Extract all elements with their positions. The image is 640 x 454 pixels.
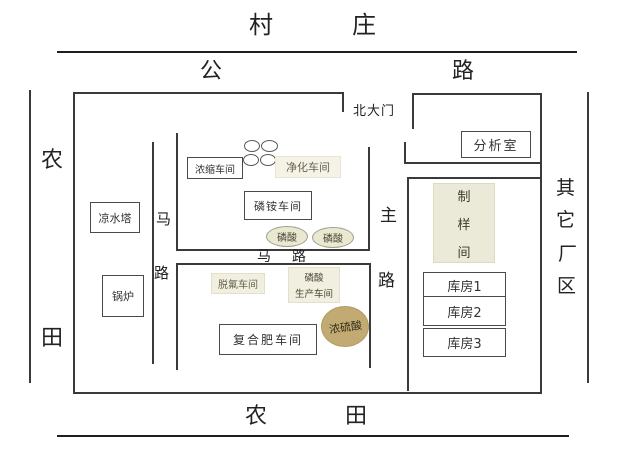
sample-prep-char2: 样 [457, 214, 470, 233]
warehouse-2: 库房2 [423, 296, 506, 326]
upper-block-wall-bottom [176, 249, 370, 251]
factory-wall-top-left [73, 92, 344, 94]
farmland-bottom-char2: 田 [345, 406, 367, 428]
sample-prep-char3: 间 [457, 242, 470, 261]
factory-wall-left [73, 92, 75, 394]
purification-workshop-label: 净化车间 [286, 159, 330, 175]
phosphoric-acid-production-line2: 生产车间 [295, 286, 333, 300]
warehouse-3: 库房3 [423, 328, 506, 357]
tank-circle-1 [244, 140, 260, 152]
analysis-room-label: 分析室 [473, 135, 518, 154]
tank-circle-2 [261, 140, 278, 152]
inner-road-vertical-char1: 马 [156, 212, 171, 227]
main-road-char2: 路 [378, 273, 395, 290]
phosphoric-acid-tank-2-label: 磷酸 [323, 230, 343, 245]
upper-block-wall-right [368, 147, 370, 251]
highway-label-char1: 公 [200, 61, 222, 83]
ammonium-phosphate-workshop: 磷铵车间 [244, 191, 312, 220]
lower-block-wall-left [176, 263, 178, 370]
main-road-char1: 主 [380, 208, 397, 225]
inner-road-horizontal-char2: 路 [292, 250, 306, 264]
cooling-tower: 凉水塔 [90, 202, 140, 233]
lower-block-wall-right [369, 263, 371, 368]
concentrated-sulfuric-acid-label: 浓硫酸 [328, 316, 363, 336]
tank-circle-3 [243, 154, 259, 166]
inner-road-horizontal-char1: 马 [257, 250, 271, 264]
bottom-road-line [57, 435, 569, 437]
storage-area-wall-left [407, 177, 409, 391]
top-road-line [57, 51, 577, 53]
sample-prep-char1: 制 [457, 186, 470, 205]
north-gate-label: 北大门 [353, 105, 395, 118]
upper-block-wall-left [176, 133, 178, 251]
compound-fertilizer-workshop: 复合肥车间 [219, 324, 317, 355]
other-area-char4: 区 [557, 277, 576, 296]
analysis-room: 分析室 [461, 131, 531, 158]
farmland-bottom-char1: 农 [245, 406, 267, 428]
highway-label-char2: 路 [452, 61, 474, 83]
phosphoric-acid-tank-1-label: 磷酸 [277, 229, 297, 244]
phosphoric-acid-production-line1: 磷酸 [304, 270, 323, 284]
warehouse-2-label: 库房2 [447, 302, 481, 321]
defluorination-workshop-label: 脱氟车间 [218, 276, 258, 291]
analysis-area-wall-v [404, 142, 406, 164]
purification-workshop: 净化车间 [275, 156, 341, 178]
farmland-left-char2: 田 [41, 328, 63, 350]
cooling-tower-label: 凉水塔 [99, 210, 132, 226]
warehouse-1-label: 库房1 [447, 276, 481, 295]
boiler-label: 锅炉 [112, 288, 134, 304]
concentration-workshop: 浓缩车间 [187, 157, 243, 179]
other-area-char1: 其 [556, 179, 575, 198]
tank-circle-4 [260, 154, 276, 166]
phosphoric-acid-tank-1: 磷酸 [266, 226, 308, 247]
concentration-workshop-label: 浓缩车间 [195, 161, 235, 176]
analysis-area-wall-h [404, 162, 541, 164]
factory-wall-top-right [412, 93, 542, 95]
village-label-char2: 庄 [352, 13, 376, 37]
warehouse-1: 库房1 [423, 272, 506, 298]
boiler: 锅炉 [102, 275, 144, 317]
other-area-char3: 厂 [558, 245, 577, 264]
left-boundary-line [29, 90, 31, 383]
inner-road-line [152, 142, 154, 364]
compound-fertilizer-workshop-label: 复合肥车间 [233, 331, 303, 348]
right-boundary-line [587, 92, 589, 383]
factory-layout-diagram: 村 庄 公 路 农 田 其 它 厂 区 农 田 北大门 分析室 制 样 间 库房… [0, 0, 640, 454]
ammonium-phosphate-workshop-label: 磷铵车间 [254, 198, 302, 214]
factory-wall-right [540, 93, 542, 394]
farmland-left-char1: 农 [41, 150, 63, 172]
village-label-char1: 村 [249, 13, 273, 37]
sample-prep-room: 制 样 间 [433, 183, 495, 263]
inner-road-vertical-char2: 路 [154, 266, 169, 281]
other-area-char2: 它 [556, 211, 575, 230]
storage-area-wall-top [407, 177, 541, 179]
north-gate-post-left [342, 92, 344, 112]
lower-block-wall-top [176, 263, 371, 265]
phosphoric-acid-production-workshop: 磷酸 生产车间 [288, 267, 340, 303]
concentrated-sulfuric-acid-tank: 浓硫酸 [321, 306, 369, 347]
defluorination-workshop: 脱氟车间 [211, 273, 265, 294]
factory-wall-bottom [73, 392, 542, 394]
warehouse-3-label: 库房3 [447, 333, 481, 352]
north-gate-post-right [412, 93, 414, 129]
phosphoric-acid-tank-2: 磷酸 [312, 227, 354, 248]
